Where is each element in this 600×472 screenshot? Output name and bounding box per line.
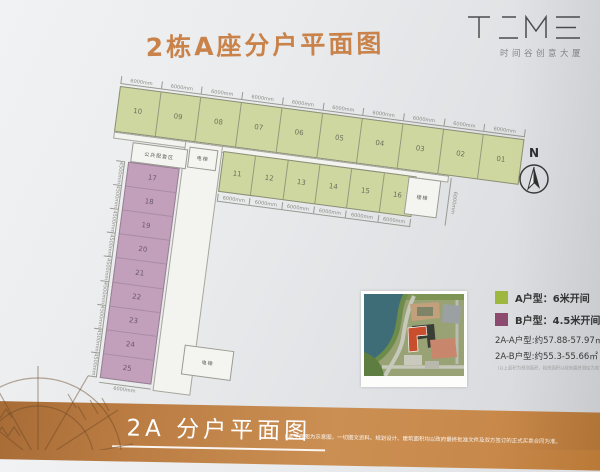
legend-label-a: A户型：6米开间 — [515, 290, 590, 305]
dimension-stair-side: 6000mm — [445, 178, 460, 227]
footer-title: 2A 分户平面图 — [112, 408, 325, 451]
unit-cell-a: 07 — [236, 103, 282, 152]
legend: A户型：6米开间 B户型：4.5米开间 2A-A户型:约57.88-57.97㎡… — [495, 290, 597, 375]
unit-cell-a: 13 — [283, 161, 320, 204]
legend-swatch-b — [495, 313, 508, 326]
unit-cell-a: 14 — [315, 165, 352, 208]
footer-disclaimer: | 本平面图为示意图，一切图文资料、规划设计、建筑面积均以政府最终批准文件及双方… — [284, 433, 600, 448]
unit-cell-a: 02 — [438, 130, 484, 179]
compass: N — [514, 146, 554, 200]
time-logo-icon — [466, 14, 584, 40]
unit-cell-a: 11 — [219, 152, 256, 195]
dimension-label: 4500mm — [107, 208, 118, 233]
aerial-map-image — [364, 294, 464, 376]
dimension-label: 4500mm — [94, 304, 105, 329]
dimension-label: 4500mm — [110, 184, 121, 209]
dimension-label: 4500mm — [88, 351, 99, 376]
legend-item-b: B户型：4.5米开间 — [495, 312, 597, 327]
dimension-label: 4500mm — [113, 160, 124, 185]
page-title: 2栋A座分户平面图 — [0, 21, 530, 66]
logo-subtitle: 时间谷创意大厦 — [456, 47, 584, 59]
legend-fine-print: （以上面积为预测面积，相关面积以政府最终测绘为准） — [495, 365, 558, 371]
dimension-label: 4500mm — [101, 256, 112, 281]
unit-cell-a: 12 — [251, 156, 288, 199]
compass-north-label: N — [514, 146, 554, 160]
unit-cell-a: 15 — [347, 169, 384, 212]
dimension-label: 4500mm — [91, 327, 102, 352]
unit-cell-a: 06 — [277, 108, 323, 157]
logo: 时间谷创意大厦 — [456, 14, 584, 59]
legend-swatch-a — [495, 291, 508, 304]
legend-label-b: B户型：4.5米开间 — [515, 312, 600, 327]
unit-cell-a: 05 — [317, 114, 363, 163]
unit-cell-a: 04 — [357, 119, 403, 168]
floor-plan: 6000mm6000mm6000mm6000mm6000mm6000mm6000… — [54, 73, 543, 459]
dimension-label: 4500mm — [97, 280, 108, 305]
dimension-label: 4500mm — [104, 232, 115, 257]
legend-item-a: A户型：6米开间 — [495, 290, 597, 305]
dimension-column-depth: 6000mm — [98, 382, 151, 398]
unit-cell-a: 03 — [398, 124, 444, 173]
area-spec-b: 2A-B户型:约55.3-55.66㎡ — [495, 350, 597, 362]
elevator-room-bottom: 电梯 — [181, 345, 234, 381]
unit-cell-a: 10 — [115, 87, 161, 136]
unit-cell-a: 09 — [155, 92, 201, 141]
site-aerial-photo — [361, 291, 467, 387]
stair-room: 楼梯 — [404, 176, 442, 218]
unit-cell-a: 08 — [196, 98, 242, 147]
elevator-room-top: 电梯 — [187, 147, 218, 172]
north-arrow-icon — [517, 162, 551, 196]
footer-bar: 2A 分户平面图 | 本平面图为示意图，一切图文资料、规划设计、建筑面积均以政府… — [0, 401, 600, 471]
area-spec-a: 2A-A户型:约57.88-57.97㎡ — [495, 334, 597, 346]
